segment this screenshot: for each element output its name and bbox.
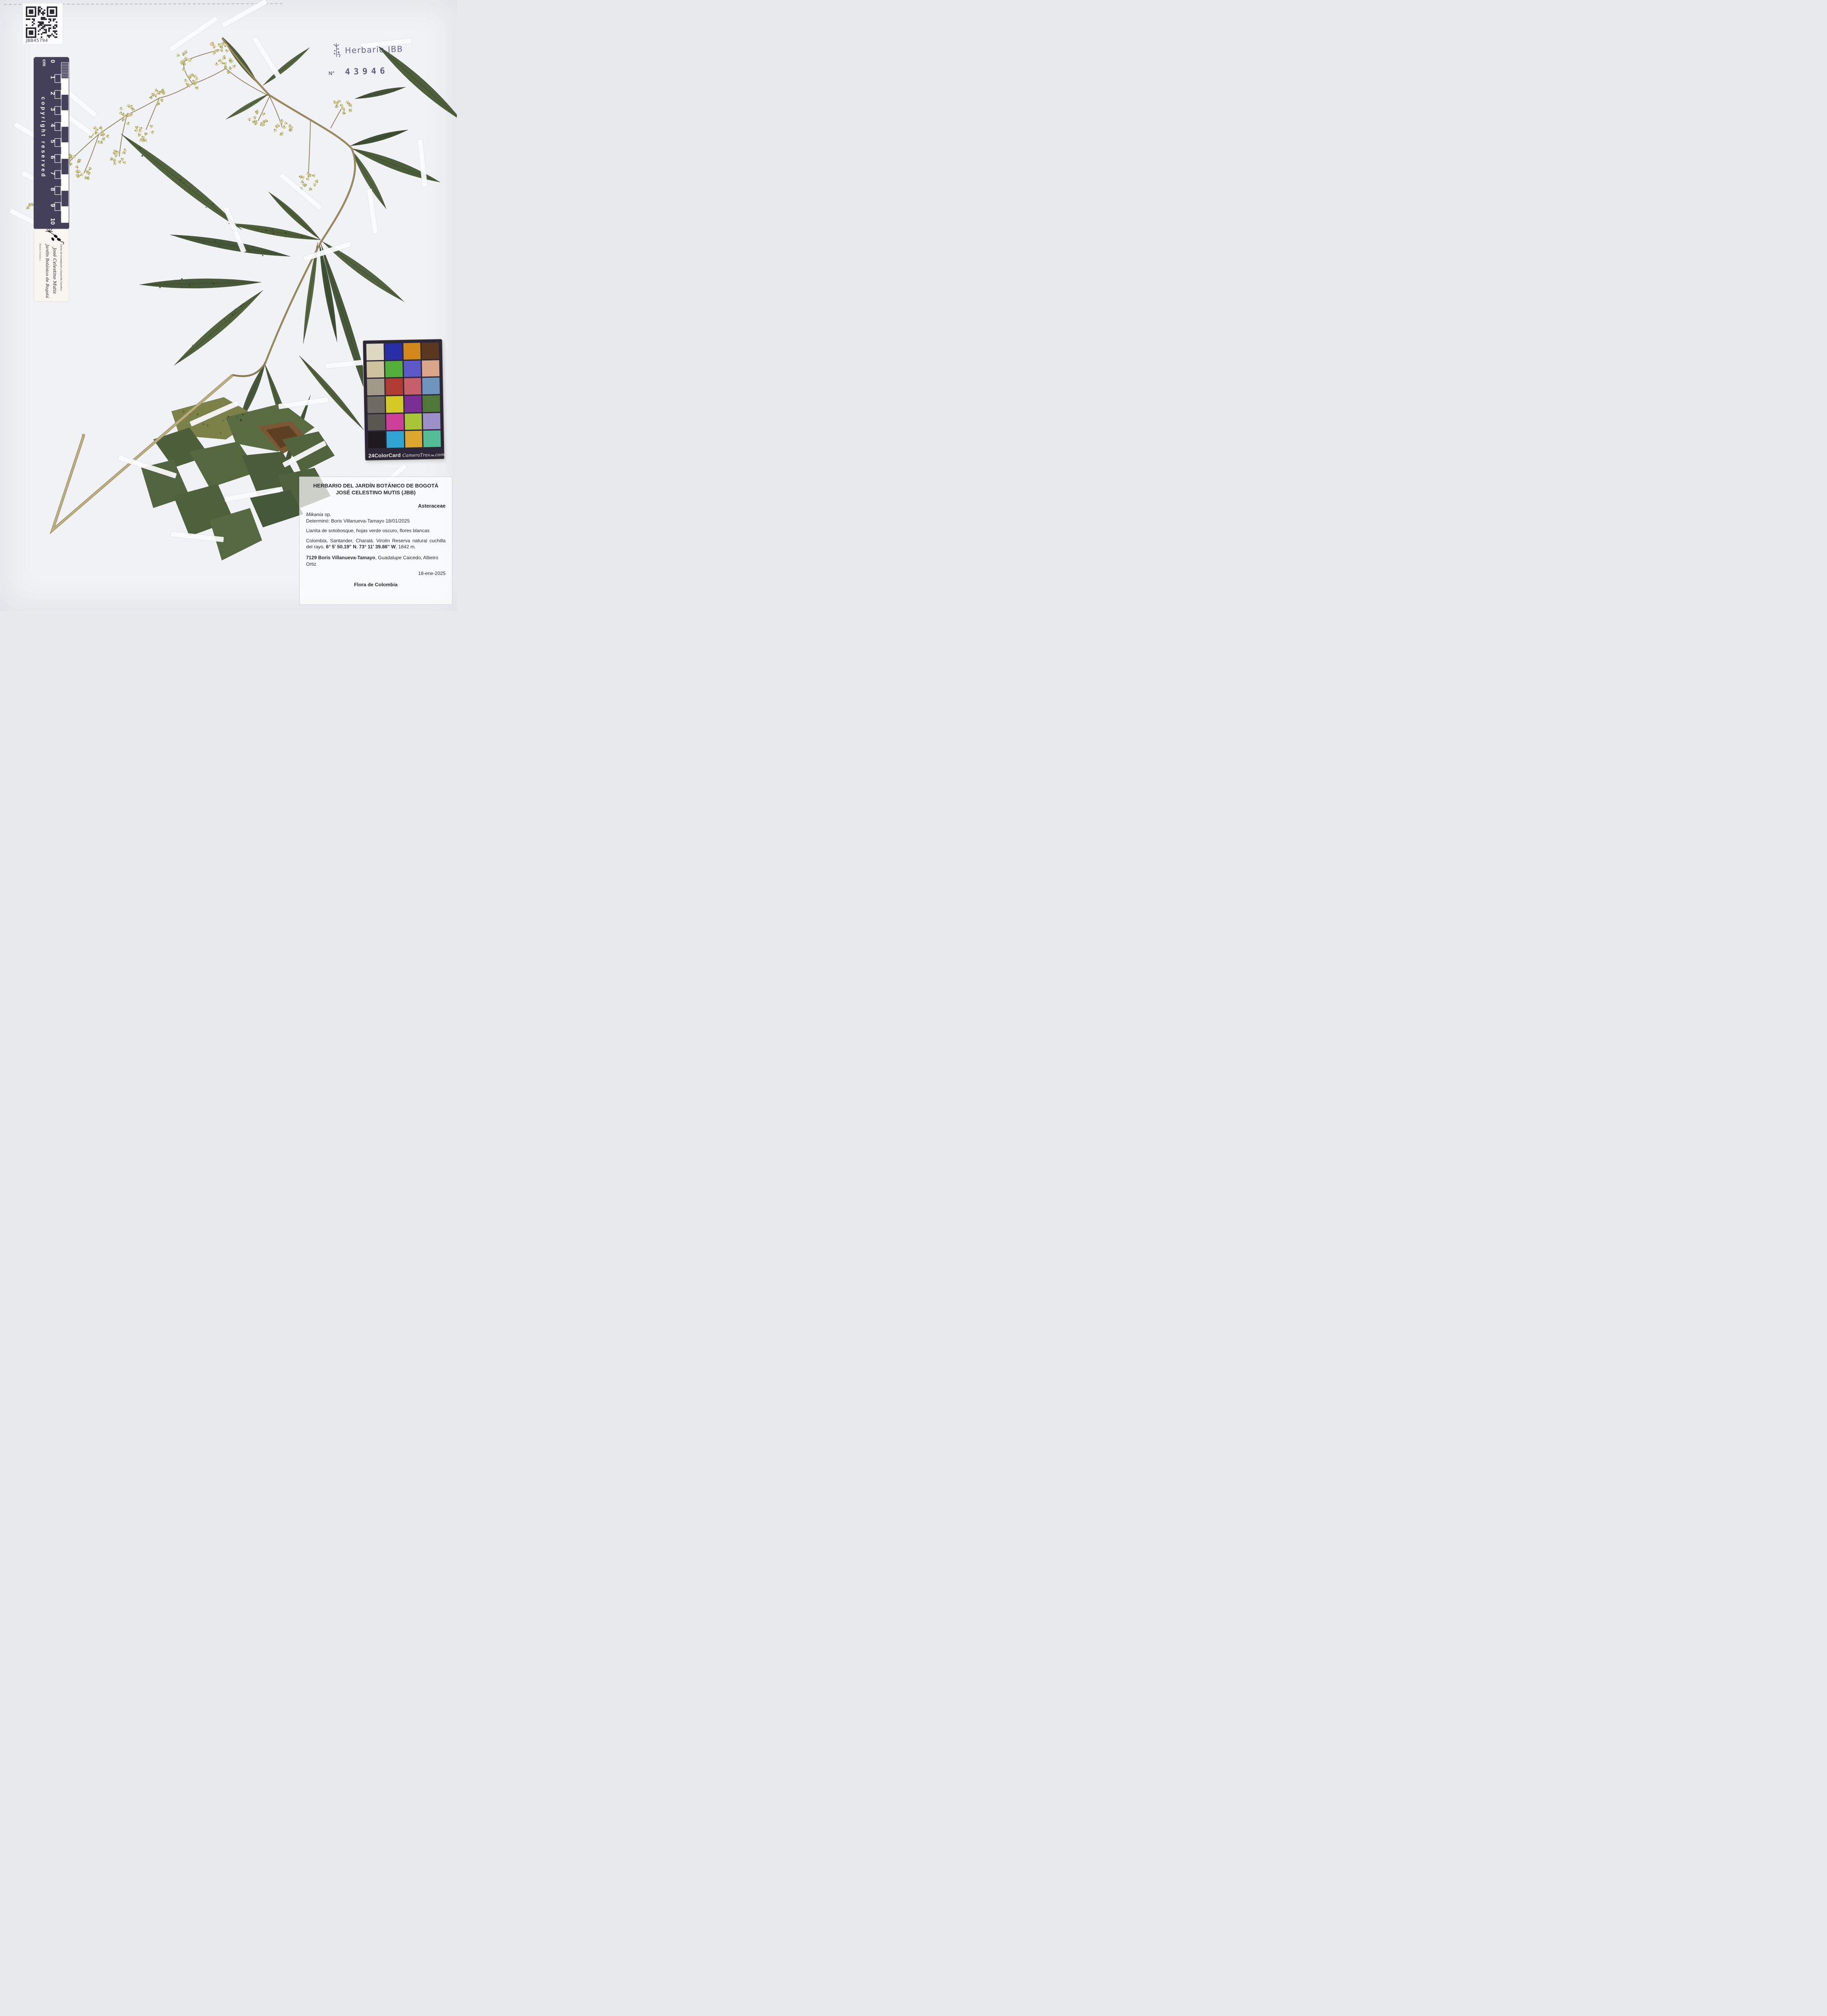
label-date: 18-ene-2025 [306, 571, 446, 577]
qr-code-label: JBB45794 [25, 38, 48, 43]
label-taxon: Mikania sp. [306, 512, 446, 518]
flower-head [119, 107, 123, 110]
leaf-spot [229, 321, 230, 322]
leaf-spot [142, 155, 144, 157]
flower-head [75, 165, 79, 169]
flower-head [126, 121, 131, 125]
flower-head [87, 167, 92, 171]
color-swatch [367, 379, 385, 395]
color-swatch [368, 431, 386, 448]
color-swatch [423, 431, 441, 447]
label-coordinate-west: 73° 11' 39.86" W [359, 544, 396, 550]
leaf-spot [197, 191, 198, 192]
flower-head [183, 79, 188, 83]
flower-head [123, 160, 127, 165]
leaf-spot [214, 240, 216, 242]
tape-strip [252, 36, 281, 78]
label-coordinate-north: 6° 5' 50.19" N [326, 544, 356, 550]
color-swatch [403, 343, 421, 359]
label-determination: Determinó: Boris Villanueva-Tamayo 18/01… [306, 518, 446, 524]
flower-head [98, 126, 102, 130]
flower-head [195, 86, 199, 90]
color-swatch [404, 378, 421, 394]
stamp-number: 43946 [345, 66, 389, 77]
herbarium-sheet: JBB45794 cm copyright reserved 012345678… [0, 0, 457, 611]
tape-strip [221, 0, 268, 28]
leaf-midrib [170, 235, 290, 256]
flower-head [149, 124, 154, 129]
color-swatch [422, 342, 440, 359]
color-swatch [367, 361, 384, 378]
leaf-spot [210, 334, 211, 335]
leaf-spot [213, 283, 215, 284]
flower-head [313, 183, 317, 186]
color-swatch [423, 395, 440, 412]
label-collectors: 7129 Boris Villanueva-Tamayo, Guadalupe … [306, 555, 446, 567]
leaf-spot [159, 287, 161, 288]
label-locality: Colombia, Santander, Charalá. Virolín Re… [306, 538, 446, 550]
ruler-tick-label: 9 [49, 204, 56, 207]
leaf-spot [224, 319, 225, 320]
label-elevation: , 1842 m. [396, 544, 416, 550]
flower-head [105, 134, 110, 138]
leaf-spot [199, 240, 200, 240]
ruler-tick-label: 8 [49, 187, 56, 191]
leaf-spot [223, 420, 224, 421]
flower-head [284, 121, 287, 125]
flower-head [248, 117, 252, 121]
leaf-spot [192, 345, 193, 346]
ruler-tick-label: 4 [49, 124, 56, 127]
ruler-tick-label: 5 [49, 140, 56, 143]
leaf-spot [242, 414, 244, 415]
color-swatch [366, 344, 384, 360]
leaf-spot [271, 229, 273, 231]
leaf-spot [301, 236, 302, 237]
ruler-unit-label: cm [42, 59, 47, 66]
flower-head [315, 179, 319, 184]
leaf-spot [237, 417, 238, 418]
flower-head [160, 98, 164, 102]
color-swatch [404, 396, 422, 412]
leaf-midrib [174, 290, 263, 365]
flower-head [335, 104, 339, 108]
leaf-spot [179, 179, 181, 181]
flower-head [222, 56, 226, 60]
flower-head [300, 179, 305, 184]
logo-org-line3: Centro de Investigación y Desarrollo Cie… [60, 244, 62, 291]
color-swatch [423, 413, 441, 429]
color-swatch [404, 360, 421, 377]
leaf-spot [249, 250, 250, 252]
main-stem-highlight [223, 39, 355, 363]
flower-head [225, 48, 229, 53]
color-swatch [368, 414, 385, 431]
ruler-tick-label: 1 [49, 76, 56, 79]
leaf-spot [231, 314, 233, 315]
leaf-spot [261, 231, 262, 232]
color-swatch [385, 361, 403, 377]
ruler-tick-label: 2 [49, 92, 56, 95]
color-swatch [405, 431, 423, 447]
leaf-spot [242, 304, 244, 305]
logo-org-line2: José Celestino Mutis [52, 247, 57, 294]
leaf-spot [219, 245, 220, 247]
card-brand: CameraTrax [402, 452, 430, 458]
flower-head [97, 140, 101, 144]
color-swatch [422, 360, 440, 377]
flower-head [223, 62, 227, 66]
ruler-tick-label: 10 [49, 218, 56, 225]
leaf-spot [299, 235, 300, 236]
ruler-tick-label: 3 [49, 108, 56, 111]
label-header-line1: HERBARIO DEL JARDÍN BOTÁNICO DE BOGOTÁ [306, 483, 446, 489]
color-swatch [386, 396, 404, 412]
leaf-spot [212, 203, 214, 205]
color-swatch [385, 378, 403, 395]
flower-head [232, 64, 237, 69]
leaf-spot [183, 182, 185, 183]
leaf-spot [178, 175, 179, 176]
ruler-tick-label: 6 [49, 156, 56, 159]
leaf-spot [220, 433, 221, 434]
label-taxon-genus: Mikania [306, 512, 323, 517]
color-swatch [385, 343, 402, 360]
label-family: Asteraceae [306, 503, 446, 509]
leaf-spot [242, 417, 244, 419]
herbarium-stamp: Herbario JBB N° 43946 [331, 41, 425, 77]
label-collector-number: 7129 Boris Villanueva-Tamayo [306, 555, 375, 560]
label-description: Lianita de sotobosque, hojas verde oscur… [306, 528, 446, 534]
card-brand-suffix: .com [434, 452, 445, 458]
flower-head [282, 125, 286, 129]
leaf-midrib [355, 87, 406, 99]
color-swatch-grid [366, 342, 441, 448]
ruler-copyright: copyright reserved [40, 97, 46, 179]
flower-head [306, 177, 310, 181]
leaf-spot [228, 281, 229, 282]
label-taxon-rest: sp. [323, 512, 331, 517]
leaf-spot [273, 232, 274, 234]
color-swatch [386, 414, 404, 430]
ruler-tick-label: 0 [49, 60, 56, 63]
logo-species-note: Mutisia clematis L. [39, 243, 41, 262]
leaf-spot [228, 416, 229, 417]
logo-org-line1: Jardín Botánico de Bogotá [45, 244, 49, 298]
card-title: 24ColorCard [369, 452, 401, 459]
color-swatch [367, 396, 385, 413]
leaf-spot [235, 309, 236, 310]
flower-head [144, 131, 148, 136]
leaf-spot [181, 286, 182, 287]
color-swatch [404, 413, 422, 430]
label-footer: Flora de Colombia [306, 582, 446, 588]
flower-head [182, 68, 186, 71]
color-swatch [422, 378, 440, 394]
stamp-title: Herbario JBB [345, 44, 403, 55]
stamp-number-label: N° [329, 70, 335, 76]
leaf-spot [186, 180, 187, 181]
leaf-spot [253, 246, 254, 247]
qr-sticker: JBB45794 [23, 3, 63, 44]
flower-head [150, 130, 155, 135]
ruler-tick-label: 7 [49, 172, 56, 175]
flower-head [342, 111, 346, 116]
leaf-spot [181, 278, 183, 280]
flower-head [273, 128, 277, 133]
tape-strip [169, 16, 218, 52]
leaf-spot [240, 306, 242, 307]
flower-head [134, 129, 138, 133]
leaf-spot [285, 236, 286, 237]
leaf-spot [139, 147, 141, 149]
logo-label-paper [34, 229, 69, 302]
color-calibration-card: 24ColorCard CameraTrax TM .com [363, 339, 444, 460]
color-swatch [386, 431, 404, 448]
stamp-plant-icon [331, 43, 342, 58]
flower-head [312, 174, 315, 178]
tape-strip [417, 139, 427, 187]
flower-head [137, 133, 142, 137]
card-trademark: TM [431, 455, 434, 457]
leaf-spot [206, 424, 209, 427]
leaf-spot [262, 255, 263, 256]
leaf-spot [234, 312, 235, 313]
leaf-spot [203, 423, 204, 425]
leaf-midrib [350, 130, 408, 146]
flower-head [228, 66, 232, 71]
leaf-spot [205, 240, 206, 241]
flower-head [308, 187, 312, 191]
flower-head [112, 161, 117, 165]
leaf-spot [189, 285, 191, 286]
leaf-spot [202, 242, 203, 243]
label-header-line2: JOSÉ CELESTINO MUTIS (JBB) [306, 489, 446, 496]
leaf-spot [182, 410, 185, 412]
leaf-spot [199, 280, 200, 281]
specimen-label: HERBARIO DEL JARDÍN BOTÁNICO DE BOGOTÁ J… [299, 477, 452, 605]
leaf-spot [240, 419, 242, 421]
flower-head [215, 62, 219, 66]
scale-ruler: cm copyright reserved 012345678910 Mutis… [34, 57, 69, 302]
leaf-spot [265, 230, 267, 231]
flower-head [176, 53, 180, 58]
flower-head [101, 137, 106, 142]
tape-strip [278, 397, 329, 409]
ruler-logo-label: Mutisia clematis L. Jardín Botánico de B… [34, 228, 69, 302]
stem-cut-tip [82, 434, 85, 437]
leaf-spot [202, 283, 204, 284]
leaf-spot [285, 232, 287, 233]
leaf-spot [174, 280, 175, 281]
leaf-spot [256, 229, 257, 230]
leaf-spot [197, 414, 198, 415]
flower-head [219, 48, 224, 53]
flower-head [253, 116, 257, 120]
flower-head [134, 125, 139, 130]
leaf-spot [206, 207, 207, 208]
